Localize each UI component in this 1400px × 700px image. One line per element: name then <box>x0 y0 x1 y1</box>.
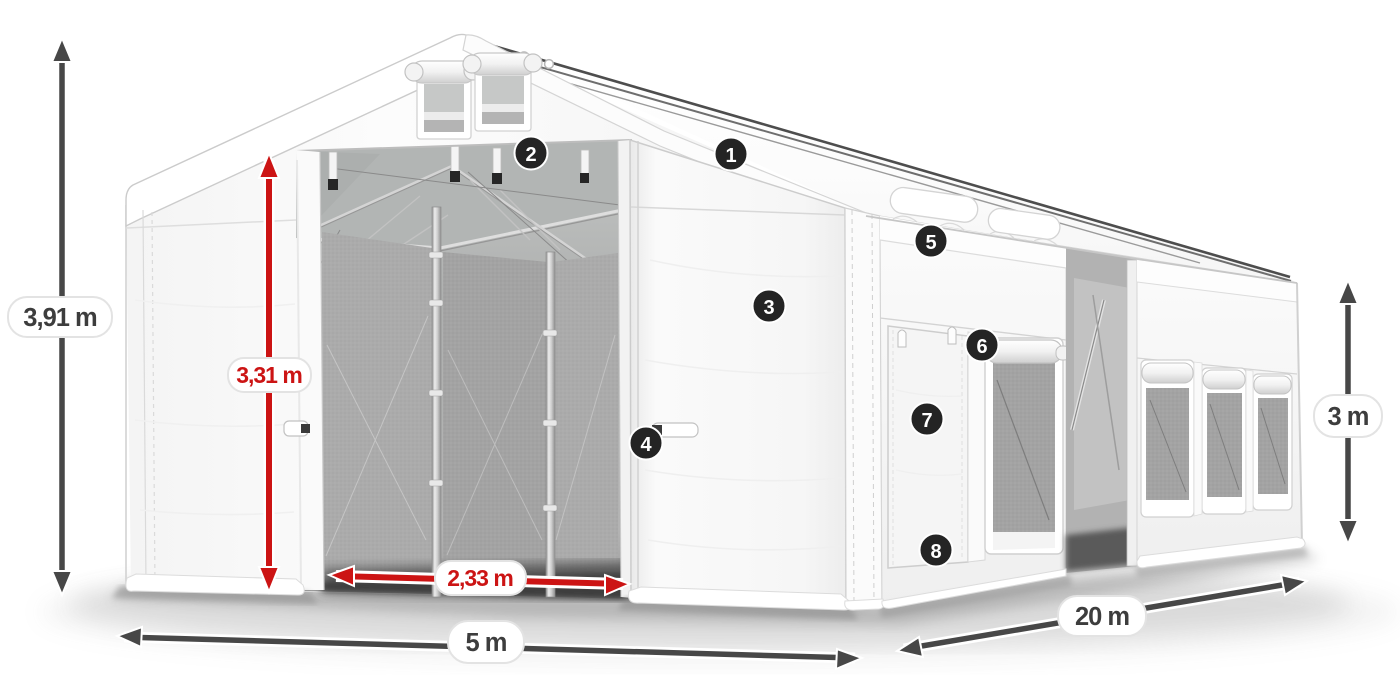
svg-text:7: 7 <box>921 410 932 432</box>
svg-text:2,33 m: 2,33 m <box>447 565 513 591</box>
svg-text:1: 1 <box>725 145 736 167</box>
svg-text:5 m: 5 m <box>466 629 507 657</box>
svg-text:4: 4 <box>640 434 652 456</box>
svg-text:3 m: 3 m <box>1328 403 1369 431</box>
svg-text:3,91 m: 3,91 m <box>23 304 97 332</box>
svg-text:5: 5 <box>925 232 936 254</box>
svg-text:3: 3 <box>763 297 774 319</box>
svg-text:20 m: 20 m <box>1075 603 1129 631</box>
svg-text:6: 6 <box>976 336 987 358</box>
svg-text:3,31 m: 3,31 m <box>236 362 302 388</box>
svg-text:8: 8 <box>930 541 941 563</box>
svg-text:2: 2 <box>525 144 536 166</box>
